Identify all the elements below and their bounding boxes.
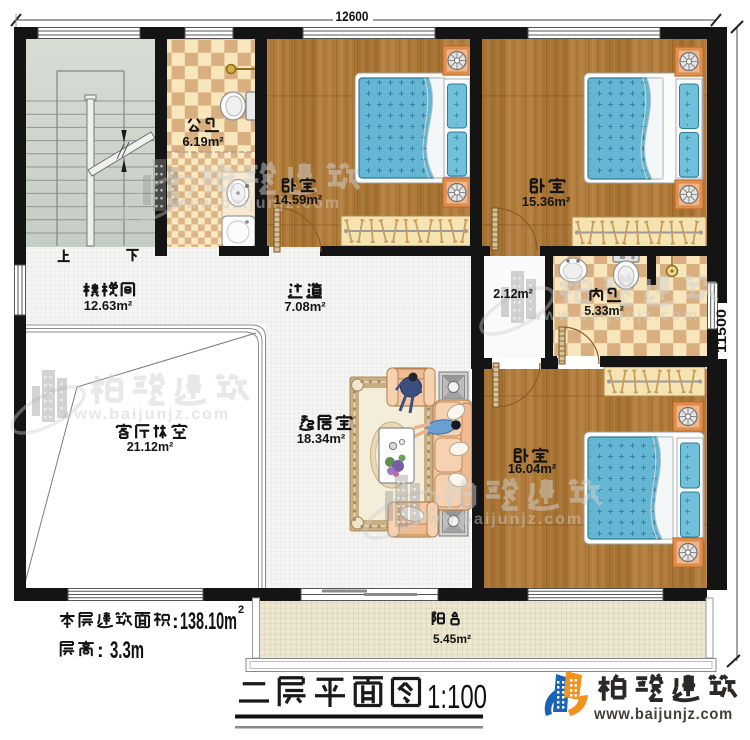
svg-text:3.3m: 3.3m xyxy=(110,637,144,664)
svg-text:12.63m²: 12.63m² xyxy=(84,298,133,313)
svg-text:2.12m²: 2.12m² xyxy=(493,287,533,301)
svg-text:6.19m²: 6.19m² xyxy=(182,134,224,149)
svg-text:5.45m²: 5.45m² xyxy=(433,632,471,646)
svg-text:5.33m²: 5.33m² xyxy=(584,304,624,318)
svg-text:21.12m²: 21.12m² xyxy=(127,440,174,454)
svg-text:12600: 12600 xyxy=(336,8,369,24)
svg-text:7.08m²: 7.08m² xyxy=(284,299,326,314)
svg-text:16.04m²: 16.04m² xyxy=(508,461,557,476)
svg-text::: : xyxy=(97,640,104,662)
svg-text:www.baijunjz.com: www.baijunjz.com xyxy=(593,706,733,723)
svg-text:138.10m: 138.10m xyxy=(180,608,237,635)
svg-text:www.baijunjz.com: www.baijunjz.com xyxy=(412,511,583,528)
svg-text:18.34m²: 18.34m² xyxy=(297,431,346,446)
svg-text:11500: 11500 xyxy=(713,309,729,353)
svg-text:2: 2 xyxy=(238,604,244,616)
svg-text:1:100: 1:100 xyxy=(427,678,487,715)
svg-text::: : xyxy=(172,611,179,633)
svg-text:www.baijunjz.com: www.baijunjz.com xyxy=(59,406,230,423)
svg-text:14.59m²: 14.59m² xyxy=(274,192,323,207)
svg-text:15.36m²: 15.36m² xyxy=(522,194,571,209)
